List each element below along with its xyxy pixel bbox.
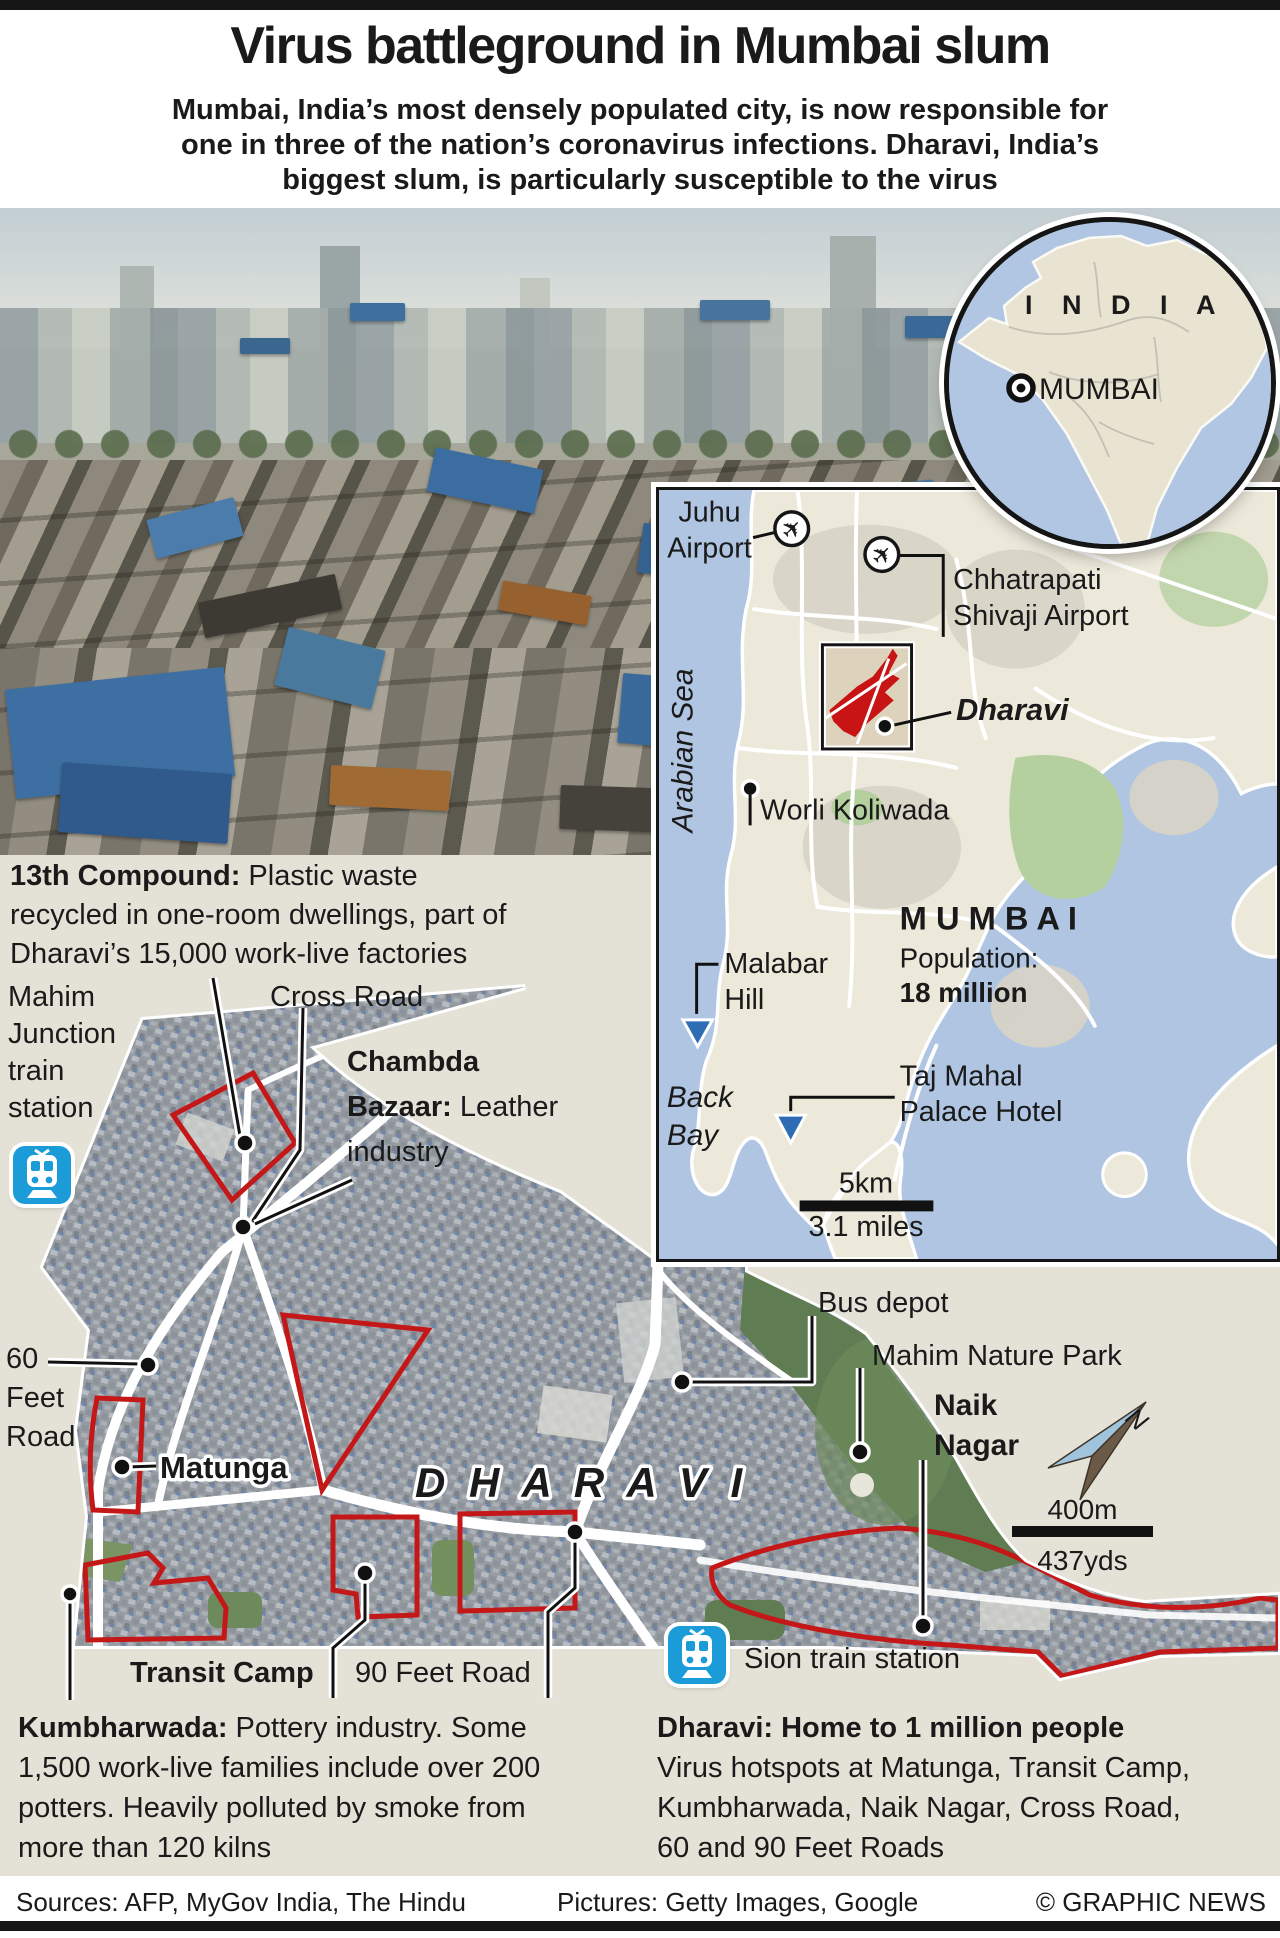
sources-credit: Sources: AFP, MyGov India, The Hindu xyxy=(16,1887,466,1918)
worli-marker xyxy=(742,781,758,797)
note-dharavi: Dharavi: Home to 1 million people Virus … xyxy=(657,1708,1212,1868)
top-rule xyxy=(0,0,1280,10)
label-bus-depot: Bus depot xyxy=(818,1285,949,1321)
population-value: 18 million xyxy=(900,977,1028,1008)
marker-transit-camp xyxy=(356,1564,374,1582)
train-glyph xyxy=(668,1626,726,1684)
note-lead: Dharavi: Home to 1 million people xyxy=(657,1708,1212,1748)
back-bay-label-1: Back xyxy=(667,1081,735,1114)
taj-label-2: Palace Hotel xyxy=(900,1096,1063,1128)
label-mahim-junction: Mahim Junction train station xyxy=(8,979,116,1127)
train-glyph xyxy=(13,1146,71,1204)
csa-label-1: Chhatrapati xyxy=(953,564,1101,596)
compass-north-arrow: N xyxy=(1040,1390,1155,1505)
credits-band: Sources: AFP, MyGov India, The Hindu Pic… xyxy=(0,1876,1280,1922)
scale-metric-label: 400m xyxy=(1012,1492,1153,1528)
map-scale-bar xyxy=(800,1200,934,1211)
marker-90-feet-road xyxy=(566,1523,584,1541)
label-line: Feet xyxy=(6,1379,75,1418)
island xyxy=(1103,1153,1147,1197)
mumbai-map-panel: ✈ ✈ Juhu Airport Chhatrapati Shivaji Air… xyxy=(656,487,1280,1262)
label-90-feet-road: 90 Feet Road xyxy=(355,1655,531,1691)
road xyxy=(243,1092,248,1228)
marker-matunga xyxy=(113,1458,131,1476)
label-line: Mahim xyxy=(8,979,116,1016)
label-sion-station: Sion train station xyxy=(744,1641,960,1677)
marker-chambda-bazaar xyxy=(234,1218,252,1236)
marker-bus-depot xyxy=(673,1373,691,1391)
label-line: station xyxy=(8,1090,116,1127)
label-line: Junction xyxy=(8,1016,116,1053)
label-line: Naik xyxy=(934,1386,1019,1426)
label-mahim-nature-park: Mahim Nature Park xyxy=(872,1338,1122,1374)
map-scale-km: 5km xyxy=(839,1167,893,1199)
juhu-label-2: Airport xyxy=(667,532,752,564)
mumbai-city-label: M U M B A I xyxy=(900,900,1077,937)
arabian-sea-label: Arabian Sea xyxy=(667,669,700,835)
infographic-page: Virus battleground in Mumbai slum Mumbai… xyxy=(0,0,1280,1938)
note-13th-compound: 13th Compound: Plastic waste recycled in… xyxy=(10,857,525,974)
map-scale-miles: 3.1 miles xyxy=(809,1211,924,1243)
mumbai-bullseye-center xyxy=(1017,384,1026,393)
india-locator-inset: I N D I A MUMBAI xyxy=(944,217,1276,549)
label-line-bold: Bazaar: xyxy=(347,1091,452,1123)
subtitle-line-1: Mumbai, India’s most densely populated c… xyxy=(0,94,1280,127)
train-station-icon xyxy=(13,1146,71,1204)
label-line: Nagar xyxy=(934,1426,1019,1466)
label-60-feet-road: 60 Feet Road xyxy=(6,1340,75,1457)
malabar-label-1: Malabar xyxy=(724,948,828,980)
copyright-credit: © GRAPHIC NEWS xyxy=(1036,1887,1266,1918)
label-line: industry xyxy=(347,1130,558,1175)
train-station-icon xyxy=(668,1626,726,1684)
label-line: Chambda xyxy=(347,1040,558,1085)
label-line: Road xyxy=(6,1418,75,1457)
label-line: 60 xyxy=(6,1340,75,1379)
india-map: I N D I A MUMBAI xyxy=(949,222,1271,544)
label-line-rest: Leather xyxy=(452,1091,558,1123)
tarp-patch xyxy=(700,300,770,320)
taj-label-1: Taj Mahal xyxy=(900,1060,1023,1092)
scale-imperial-label: 437yds xyxy=(1012,1543,1153,1579)
csa-label-2: Shivaji Airport xyxy=(953,600,1129,632)
marker-mahim-nature-park xyxy=(851,1443,869,1461)
subtitle-line-3: biggest slum, is particularly susceptibl… xyxy=(0,164,1280,197)
dharavi-marker xyxy=(877,718,893,734)
marker-kumbharwada xyxy=(62,1586,78,1602)
note-kumbharwada: Kumbharwada: Pottery industry. Some 1,50… xyxy=(18,1708,553,1868)
label-naik-nagar: Naik Nagar xyxy=(934,1386,1019,1466)
label-chambda-bazaar: Chambda Bazaar: Leather industry xyxy=(347,1040,558,1175)
note-text: Virus hotspots at Matunga, Transit Camp,… xyxy=(657,1748,1212,1868)
marker-naik-nagar xyxy=(914,1617,932,1635)
marker-60-feet-road xyxy=(139,1356,157,1374)
note-13th-compound-lead: 13th Compound: xyxy=(10,860,240,892)
tarp-patch xyxy=(240,338,290,354)
label-cross-road: Cross Road xyxy=(270,979,423,1015)
scale-bar xyxy=(1012,1526,1153,1537)
page-title: Virus battleground in Mumbai slum xyxy=(0,16,1280,76)
dharavi-box xyxy=(822,645,911,749)
mumbai-label: MUMBAI xyxy=(1039,373,1159,406)
note-lead: Kumbharwada: xyxy=(18,1712,227,1744)
tarp-patch xyxy=(350,303,405,321)
marker-13th-compound xyxy=(236,1134,254,1152)
india-label: I N D I A xyxy=(1025,290,1227,320)
worli-label: Worli Koliwada xyxy=(760,794,949,826)
dharavi-area-label: D H A R A V I xyxy=(415,1459,748,1506)
subtitle-line-2: one in three of the nation’s coronavirus… xyxy=(0,129,1280,162)
tarp-patch xyxy=(58,762,232,844)
matunga-label: Matunga xyxy=(160,1450,288,1485)
label-transit-camp: Transit Camp xyxy=(130,1655,314,1691)
juhu-label-1: Juhu xyxy=(678,497,740,529)
pictures-credit: Pictures: Getty Images, Google xyxy=(557,1887,918,1918)
population-label: Population: xyxy=(900,942,1039,973)
rust-roof-patch xyxy=(329,765,451,811)
dharavi-label: Dharavi xyxy=(956,692,1070,727)
label-line: train xyxy=(8,1053,116,1090)
back-bay-label-2: Bay xyxy=(667,1119,720,1152)
malabar-label-2: Hill xyxy=(724,984,764,1016)
mumbai-map: ✈ ✈ Juhu Airport Chhatrapati Shivaji Air… xyxy=(659,490,1277,1259)
bottom-rule xyxy=(0,1921,1280,1931)
